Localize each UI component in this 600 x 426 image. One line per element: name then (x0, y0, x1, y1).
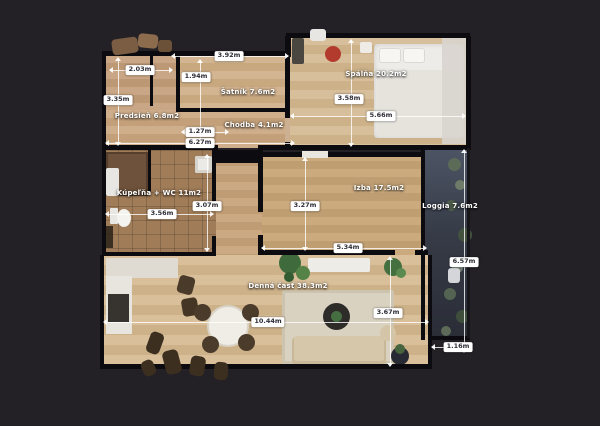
dining-chair (238, 334, 255, 351)
room-label-kupelna: Kúpeľňa + WC 11m2 (117, 189, 201, 197)
wall-segment (421, 148, 425, 340)
measurement-loggia-height: 6.57m (450, 257, 479, 267)
pouf (380, 325, 396, 341)
wall-segment (148, 150, 151, 192)
room-label-predsien: Predsieň 6.8m2 (115, 112, 179, 120)
wall-segment (467, 148, 470, 338)
wall-segment (258, 145, 470, 150)
measurement-denna-height: 3.67m (374, 308, 403, 318)
room-label-spalna: Spálňa 20.2m2 (345, 70, 406, 78)
washing-machine (195, 156, 212, 173)
wall-segment (258, 152, 302, 157)
plant (284, 272, 294, 282)
chair (213, 361, 229, 380)
wall-segment (428, 255, 432, 368)
dining-chair (202, 336, 219, 353)
floorplan-canvas: 2.03m 3.35m 1.94m 3.92m 1.27m 6.27m 3.58… (0, 0, 600, 426)
room-label-loggia: Loggia 7.6m2 (422, 202, 478, 210)
measurement-satnik-width: 3.92m (215, 51, 244, 61)
wall-segment (258, 250, 395, 255)
room-floor-satnik (178, 55, 286, 110)
nightstand (360, 42, 372, 53)
wall-segment (100, 255, 104, 368)
wall-segment (216, 150, 258, 163)
bedding-area (442, 38, 466, 144)
room-floor-corridor (216, 150, 262, 256)
measurement-predsien-width: 2.03m (126, 65, 155, 75)
table-plant (331, 311, 342, 322)
measurement-satnik-height: 1.94m (182, 72, 211, 82)
wall-segment (285, 36, 290, 118)
measurement-spalna-width: 5.66m (367, 111, 396, 121)
chair (188, 355, 206, 377)
measurement-chodba-width: 1.27m (186, 127, 215, 137)
room-label-satnik: Šatník 7.6m2 (221, 88, 276, 96)
room-label-denna-cast: Denná časť 38.3m2 (248, 282, 327, 290)
measure-line (351, 40, 352, 146)
loggia-plant (448, 158, 461, 171)
pillow (379, 48, 401, 63)
loggia-plant (444, 288, 456, 300)
pillow (403, 48, 425, 63)
room-label-izba: Izba 17.5m2 (354, 184, 405, 192)
scan-clutter (158, 40, 172, 52)
scan-clutter (137, 33, 158, 49)
dining-chair (194, 304, 211, 321)
room-label-chodba: Chodba 4.1m2 (224, 121, 283, 129)
wall-segment (176, 108, 288, 112)
dresser (292, 38, 304, 64)
loggia-chair (448, 268, 460, 283)
wall-segment (102, 252, 216, 256)
measure-line (464, 150, 465, 352)
plant (396, 268, 406, 278)
door-opening (285, 118, 290, 142)
measurement-kupelna-width: 3.56m (148, 209, 177, 219)
sideboard (308, 258, 370, 272)
measurement-top-section-width: 6.27m (186, 138, 215, 148)
measurement-predsien-height: 3.35m (104, 95, 133, 105)
wall-segment (102, 150, 106, 256)
measurement-kupelna-height: 3.07m (193, 201, 222, 211)
red-chair (325, 46, 341, 62)
kitchen-counter (106, 258, 178, 278)
wall-segment (328, 152, 425, 157)
wall-segment (466, 36, 471, 150)
loggia-plant (441, 326, 451, 336)
wall-segment (258, 150, 263, 212)
plant (296, 266, 310, 280)
plant (395, 344, 405, 354)
wall-segment (150, 56, 153, 106)
measurement-izba-width: 5.34m (334, 243, 363, 253)
measurement-loggia-width: 1.16m (444, 342, 473, 352)
wall-segment (176, 53, 180, 112)
scan-clutter (310, 29, 326, 41)
fridge (108, 294, 129, 322)
toilet (117, 209, 131, 227)
measurement-denna-width: 10.44m (251, 317, 284, 327)
measurement-spalna-height: 3.58m (335, 94, 364, 104)
measurement-izba-height: 3.27m (291, 201, 320, 211)
sofa (292, 336, 386, 366)
room-floor-izba (262, 153, 425, 255)
